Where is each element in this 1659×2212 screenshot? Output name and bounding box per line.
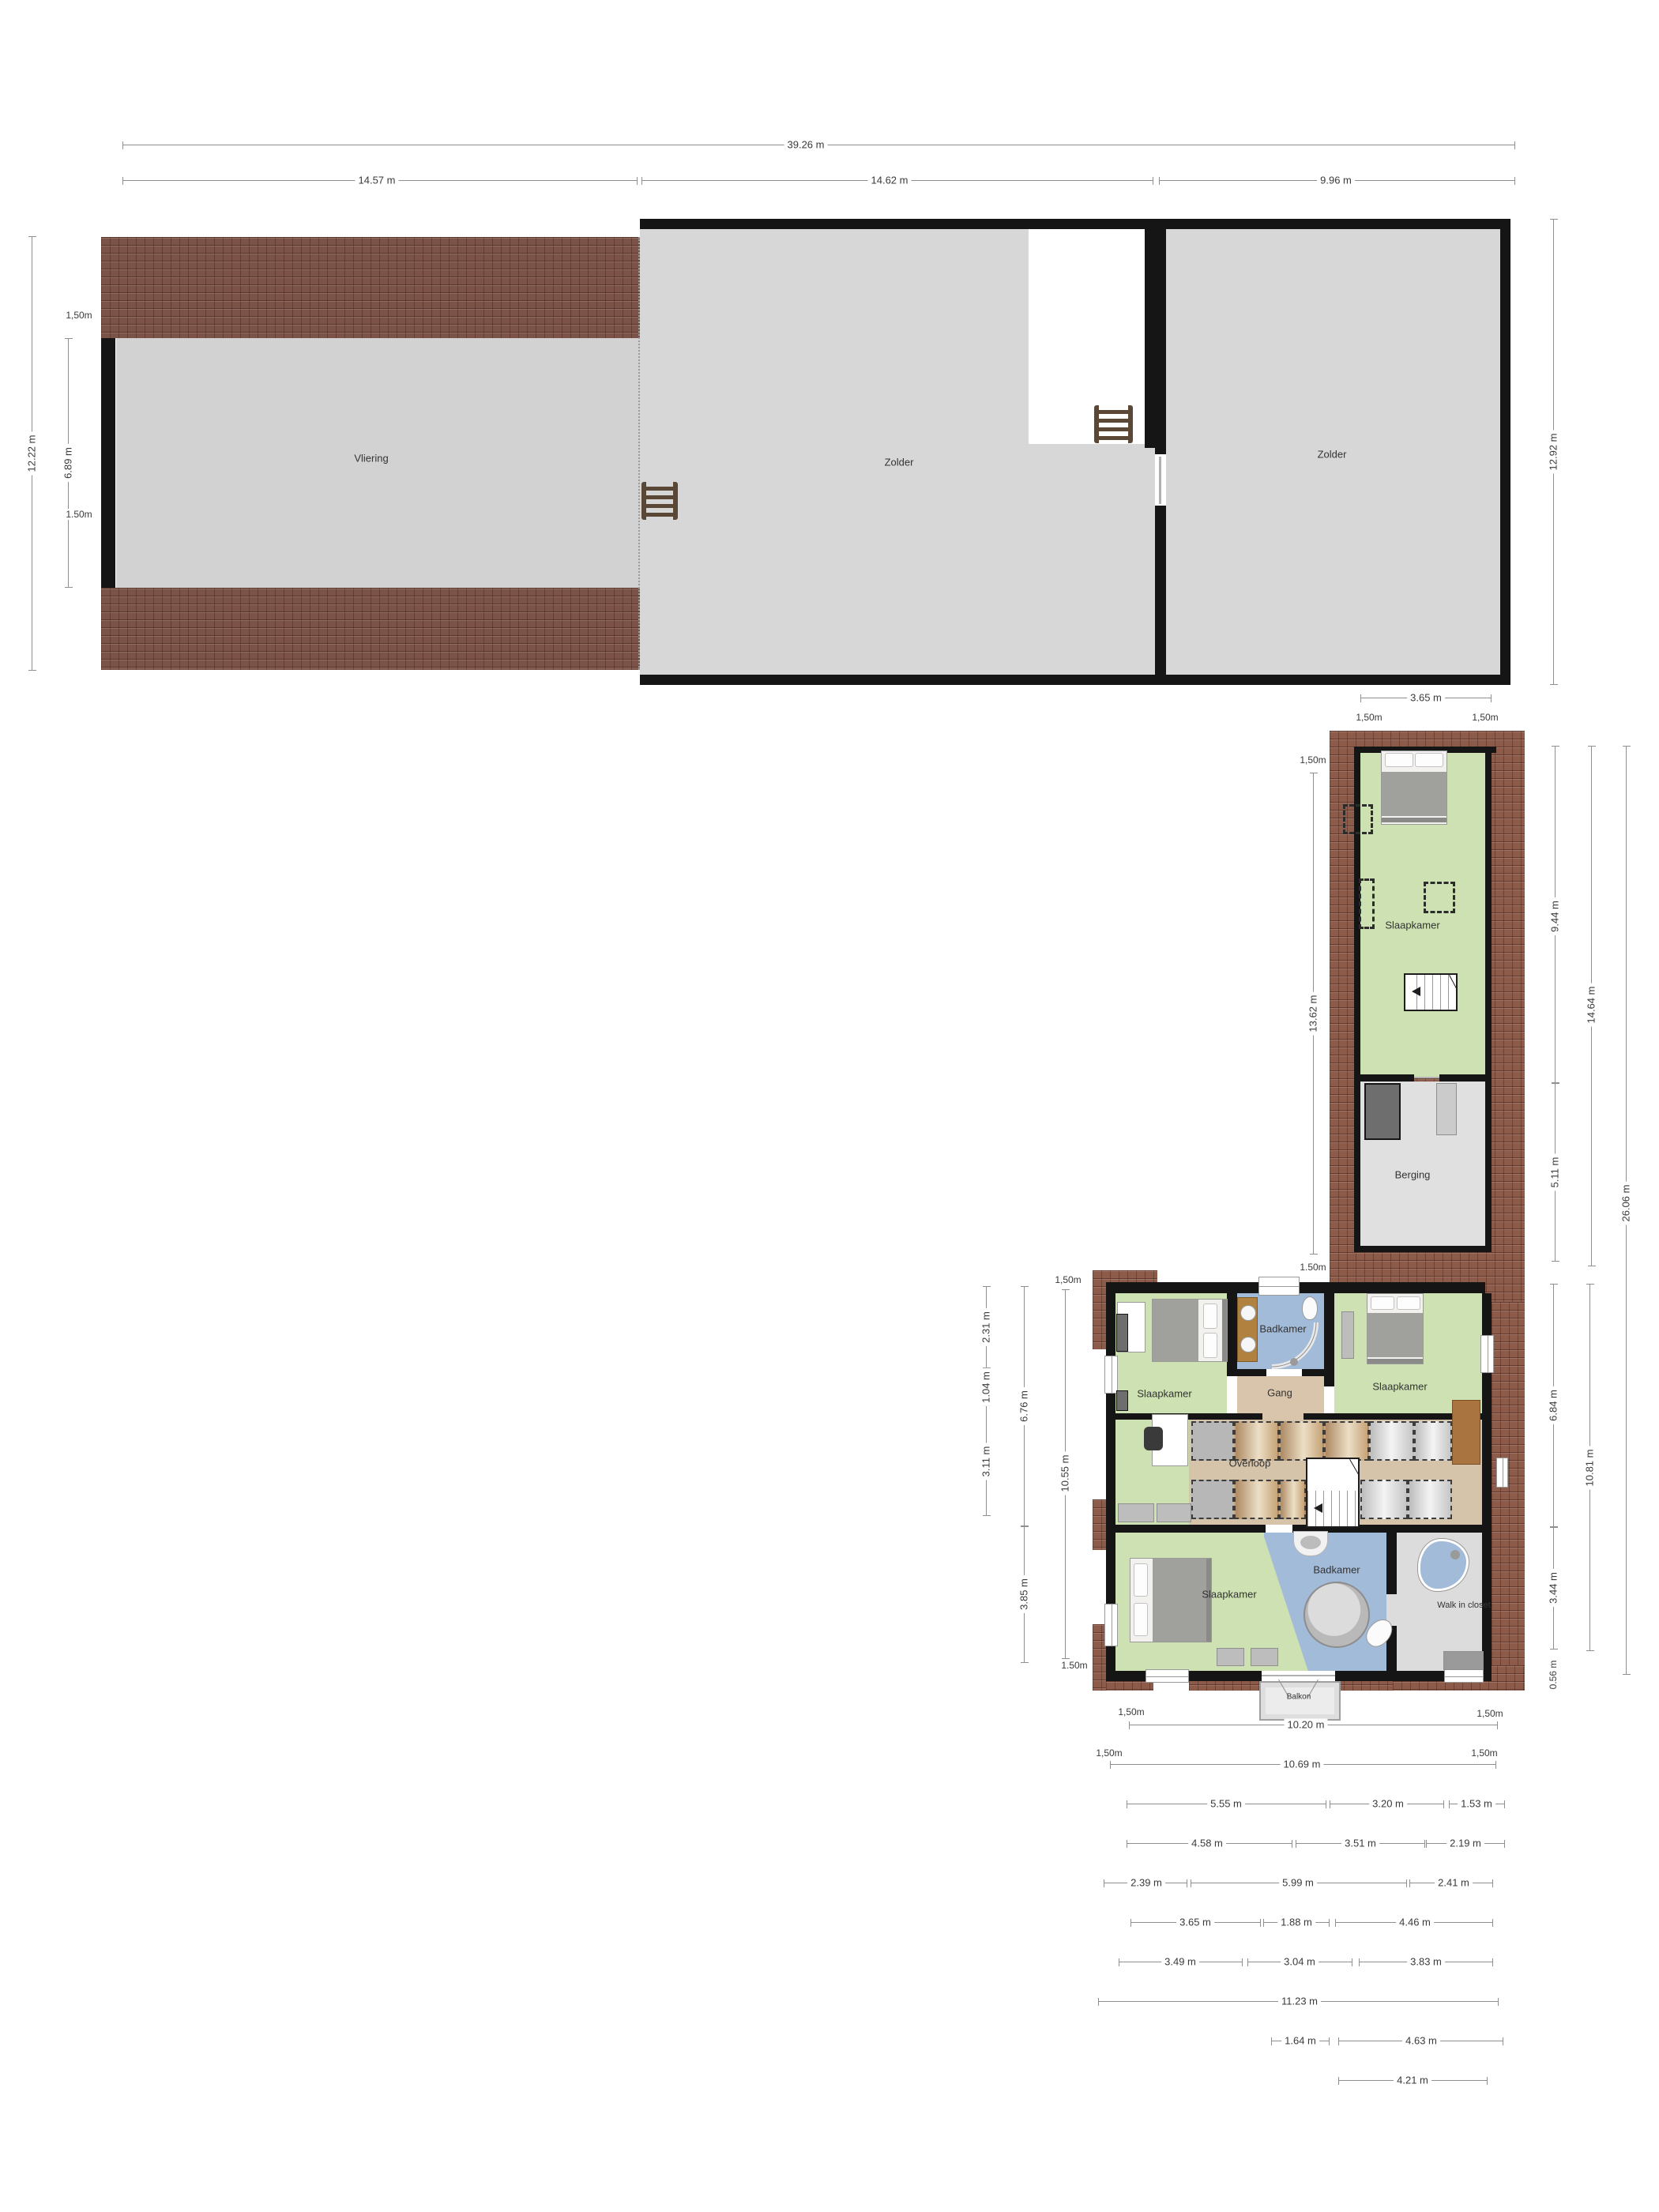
closet-icon <box>1191 1480 1234 1519</box>
closet-icon <box>1191 1421 1234 1461</box>
cabinet-icon <box>1436 1083 1457 1135</box>
stair-diagonal <box>1349 1459 1360 1495</box>
dim-label: 3.20 m <box>1369 1798 1407 1810</box>
bed-headboard <box>1222 1300 1227 1361</box>
bed-icon <box>1381 750 1447 825</box>
wall-berging-right <box>1485 1082 1492 1246</box>
wall-attic-bottom <box>640 675 1510 685</box>
wall-vliering-left <box>101 338 115 588</box>
dim-label: 4.63 m <box>1402 2035 1440 2047</box>
door-leaf-wing <box>1414 1077 1439 1078</box>
window <box>1480 1335 1494 1373</box>
room-label-balkon: Balkon <box>1287 1693 1311 1702</box>
dim-label: 3.83 m <box>1407 1956 1445 1968</box>
wall-attic-right <box>1500 219 1510 685</box>
room-label-badkamer-bottom: Badkamer <box>1313 1564 1360 1576</box>
pillow-icon <box>1385 753 1413 767</box>
roof-vliering-top <box>101 237 640 338</box>
closet-icon <box>1279 1421 1324 1461</box>
dim-label: 11.23 m <box>1278 1996 1321 2007</box>
stair-treads <box>1416 975 1456 1010</box>
dim-label-seg2: 14.62 m <box>868 175 912 186</box>
dim-label: 3.49 m <box>1161 1956 1199 1968</box>
dim-label: 3.11 m <box>980 1443 992 1480</box>
dim-label: 4.46 m <box>1396 1917 1434 1928</box>
wall-zolder-divider-lower <box>1155 506 1166 685</box>
pillow-icon <box>1134 1563 1148 1597</box>
dim-label: 4.21 m <box>1394 2075 1431 2086</box>
dim-label-wing-left-top: 1,50m <box>1296 754 1329 766</box>
closet-icon <box>1360 1480 1408 1519</box>
dim-label-overhang-top: 1,50m <box>62 310 95 321</box>
closet-icon <box>1324 1421 1369 1461</box>
dim-label-seg1: 14.57 m <box>355 175 399 186</box>
wall-overloop-bottom-left <box>1115 1525 1266 1533</box>
dim-label: 1,50m <box>1115 1706 1147 1717</box>
wall-zolder-divider-upper <box>1155 219 1166 454</box>
dim-label: 0.56 m <box>1548 1657 1559 1693</box>
dim-label: 5.55 m <box>1207 1798 1245 1810</box>
chair-icon <box>1144 1427 1163 1450</box>
blanket <box>1382 772 1446 816</box>
pillow-icon <box>1397 1296 1420 1310</box>
dim-label: 2.19 m <box>1446 1838 1484 1849</box>
dim-label-wing-overhang-left: 1,50m <box>1352 712 1385 723</box>
wall-wing-mid-right <box>1439 1074 1492 1082</box>
stool-icon <box>1217 1648 1244 1666</box>
room-label-slaapkamer-tl: Slaapkamer <box>1137 1388 1191 1400</box>
room-label-gang: Gang <box>1267 1387 1292 1399</box>
dim-label: 1,50m <box>1093 1747 1125 1759</box>
room-label-wing-slaapkamer: Slaapkamer <box>1385 920 1439 931</box>
dim-label-wing-top: 3.65 m <box>1407 692 1445 704</box>
dim-label: 3.04 m <box>1281 1956 1319 1968</box>
wall-berging-bottom <box>1354 1246 1492 1252</box>
pillow-icon <box>1203 1303 1217 1329</box>
ladder-icon <box>641 482 678 520</box>
closet-icon <box>1234 1421 1279 1461</box>
dim-label: 10.69 m <box>1281 1759 1324 1770</box>
sink-icon <box>1240 1305 1256 1321</box>
nightstand-icon <box>1157 1503 1191 1522</box>
wardrobe-icon <box>1116 1390 1128 1411</box>
dim-label: 6.76 m <box>1018 1387 1030 1425</box>
desk-icon <box>1452 1400 1480 1465</box>
dim-label: 3.51 m <box>1341 1838 1379 1849</box>
dim-label-overall-height: 26.06 m <box>1620 1182 1632 1225</box>
pillow-icon <box>1134 1603 1148 1636</box>
nightstand-icon <box>1118 1503 1154 1522</box>
skylight-icon <box>1424 882 1455 913</box>
dim-label: 3.65 m <box>1176 1917 1214 1928</box>
room-label-slaapkamer-tr: Slaapkamer <box>1372 1381 1427 1393</box>
balcony-threshold <box>1262 1675 1335 1676</box>
window <box>1104 1356 1118 1394</box>
wall-badkamer-bottom-l <box>1227 1369 1266 1376</box>
dim-label-wing-left-bottom: 1.50m <box>1296 1262 1329 1273</box>
arrow-left-icon <box>1309 1503 1322 1513</box>
room-label-slaapkamer-bottom: Slaapkamer <box>1202 1589 1256 1601</box>
skylight-icon <box>1343 804 1373 834</box>
pillow-icon <box>1203 1333 1217 1358</box>
dim-label: 1,50m <box>1468 1747 1500 1759</box>
window <box>1496 1458 1508 1488</box>
roof-floor-right <box>1492 1302 1525 1691</box>
toilet-icon <box>1302 1296 1318 1320</box>
stairs-icon <box>1404 973 1458 1011</box>
wardrobe-icon <box>1443 1651 1484 1670</box>
dim-label: 3.85 m <box>1018 1575 1030 1613</box>
closet-icon <box>1364 1083 1401 1140</box>
room-label-walkincloset: Walk in closet <box>1437 1601 1490 1610</box>
dim-label-overhang-bottom: 1.50m <box>62 509 95 520</box>
wardrobe-icon <box>1116 1314 1128 1352</box>
wall-wing-right <box>1485 747 1492 1082</box>
room-label-zolder-right: Zolder <box>1318 449 1347 461</box>
dim-label: 2.39 m <box>1127 1877 1165 1889</box>
stairs-icon <box>1306 1458 1360 1528</box>
dim-label-attic-left-inner: 6.89 m <box>62 444 74 482</box>
bed-icon <box>1152 1299 1228 1362</box>
window <box>1258 1277 1300 1296</box>
window <box>1145 1669 1189 1683</box>
dim-label-wing-total: 14.64 m <box>1586 984 1597 1027</box>
pillow-icon <box>1415 753 1443 767</box>
room-label-badkamer-top: Badkamer <box>1259 1323 1306 1335</box>
skylight-icon <box>1359 878 1375 929</box>
dim-label: 2.31 m <box>980 1308 992 1346</box>
dim-label: 1,50m <box>1051 1274 1084 1285</box>
void-opening <box>1029 229 1155 444</box>
dim-label: 2.41 m <box>1435 1877 1473 1889</box>
dim-label: 1,50m <box>1473 1708 1506 1719</box>
closet-icon <box>1414 1421 1452 1461</box>
dim-label-attic-left: 12.22 m <box>26 432 38 476</box>
window <box>1444 1669 1484 1683</box>
window <box>1104 1604 1118 1646</box>
sink-icon <box>1240 1337 1256 1352</box>
bed-footboard <box>1367 1359 1423 1364</box>
dim-label-attic-right: 12.92 m <box>1548 431 1559 474</box>
dim-label: 10.20 m <box>1285 1719 1328 1731</box>
dim-label: 4.58 m <box>1188 1838 1226 1849</box>
dim-label-total-width: 39.26 m <box>784 139 828 151</box>
roof-vliering-bottom <box>101 588 640 670</box>
dim-label-seg3: 9.96 m <box>1317 175 1355 186</box>
dim-label: 3.44 m <box>1548 1569 1559 1607</box>
shower-head-icon <box>1450 1550 1460 1559</box>
room-label-overloop: Overloop <box>1229 1458 1271 1469</box>
dim-label-wing-overhang-right: 1,50m <box>1469 712 1501 723</box>
bathtub-icon <box>1303 1582 1370 1648</box>
wall-walkin-left-upper <box>1386 1533 1397 1594</box>
room-label-berging: Berging <box>1395 1169 1431 1181</box>
room-label-vliering: Vliering <box>354 453 388 465</box>
desk-icon <box>1341 1311 1354 1359</box>
closet-icon <box>1369 1421 1414 1461</box>
ladder-icon <box>1094 405 1133 443</box>
floorplan-canvas: 39.26 m 14.57 m 14.62 m 9.96 m Vliering … <box>0 0 1659 2212</box>
dim-label: 1.88 m <box>1277 1917 1315 1928</box>
dim-label-wing-room: 9.44 m <box>1549 897 1561 935</box>
blanket <box>1367 1313 1423 1357</box>
bed-icon <box>1130 1558 1212 1642</box>
wall-wing-mid-left <box>1354 1074 1414 1082</box>
dim-label-wing-left: 13.62 m <box>1307 992 1319 1036</box>
dim-label: 1.50m <box>1058 1660 1090 1671</box>
wall-overloop-top-left <box>1115 1413 1262 1420</box>
blanket <box>1153 1300 1198 1361</box>
dim-label: 6.84 m <box>1548 1386 1559 1424</box>
room-label-zolder-middle: Zolder <box>885 457 914 468</box>
pillow-icon <box>1371 1296 1394 1310</box>
dim-label: 1.53 m <box>1458 1798 1495 1810</box>
wall-attic-top <box>640 219 1510 229</box>
dim-label: 1.04 m <box>980 1368 992 1406</box>
bed-footboard <box>1206 1559 1211 1642</box>
dim-label: 1.64 m <box>1281 2035 1319 2047</box>
dim-label: 10.81 m <box>1584 1446 1596 1490</box>
wall-badkamer-left <box>1227 1293 1237 1375</box>
dim-label: 5.99 m <box>1279 1877 1317 1889</box>
blanket <box>1153 1559 1211 1642</box>
closet-icon <box>1408 1480 1452 1519</box>
closet-icon <box>1234 1480 1279 1519</box>
closet-icon <box>1279 1480 1306 1519</box>
door-leaf-zolder <box>1159 457 1161 504</box>
dim-label-berging: 5.11 m <box>1549 1154 1561 1191</box>
dim-label: 10.55 m <box>1059 1452 1071 1495</box>
bed-icon <box>1367 1293 1424 1364</box>
stool-icon <box>1251 1648 1278 1666</box>
bed-footboard <box>1382 818 1446 822</box>
divider-vliering-zolder <box>638 237 640 670</box>
wall-void-right <box>1145 229 1155 448</box>
wall-berging-left <box>1354 1082 1360 1246</box>
arrow-left-icon <box>1407 987 1420 996</box>
